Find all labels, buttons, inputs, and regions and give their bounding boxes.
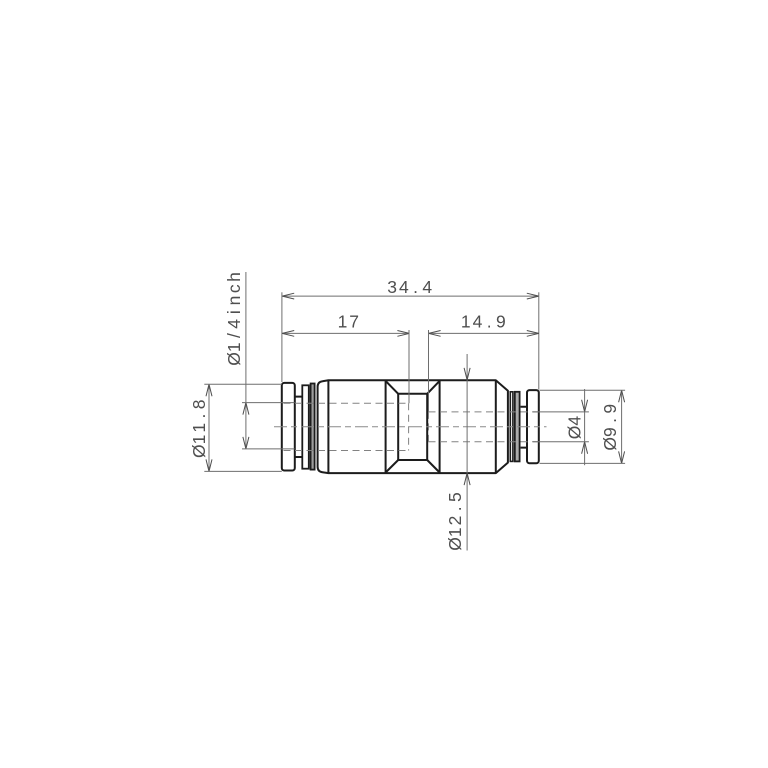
- svg-text:9: 9: [600, 404, 620, 414]
- svg-text:Ø: Ø: [224, 352, 244, 366]
- svg-text:4: 4: [224, 319, 244, 329]
- svg-text:1: 1: [189, 435, 209, 445]
- svg-text:9: 9: [496, 312, 506, 332]
- svg-text:/: /: [224, 333, 244, 338]
- svg-text:4: 4: [399, 277, 409, 297]
- svg-text:8: 8: [189, 399, 209, 409]
- svg-text:Ø: Ø: [189, 444, 209, 458]
- svg-text:Ø: Ø: [600, 437, 620, 451]
- svg-text:1: 1: [338, 312, 348, 332]
- svg-text:.: .: [445, 506, 465, 511]
- svg-text:4: 4: [473, 312, 483, 332]
- svg-text:5: 5: [445, 492, 465, 502]
- svg-text:.: .: [600, 418, 620, 423]
- svg-text:n: n: [224, 296, 244, 306]
- svg-text:9: 9: [600, 427, 620, 437]
- svg-text:Ø: Ø: [564, 425, 584, 439]
- svg-text:4: 4: [422, 277, 432, 297]
- svg-text:1: 1: [189, 423, 209, 433]
- svg-text:c: c: [224, 284, 244, 293]
- svg-text:.: .: [487, 312, 492, 332]
- svg-text:i: i: [224, 310, 244, 314]
- svg-text:4: 4: [564, 416, 584, 426]
- svg-text:.: .: [413, 277, 418, 297]
- svg-text:1: 1: [224, 342, 244, 352]
- svg-text:.: .: [189, 414, 209, 419]
- svg-text:h: h: [224, 272, 244, 282]
- svg-text:7: 7: [349, 312, 359, 332]
- svg-text:1: 1: [461, 312, 471, 332]
- svg-text:3: 3: [387, 277, 397, 297]
- svg-text:1: 1: [445, 527, 465, 537]
- svg-text:Ø: Ø: [445, 537, 465, 551]
- svg-text:2: 2: [445, 516, 465, 526]
